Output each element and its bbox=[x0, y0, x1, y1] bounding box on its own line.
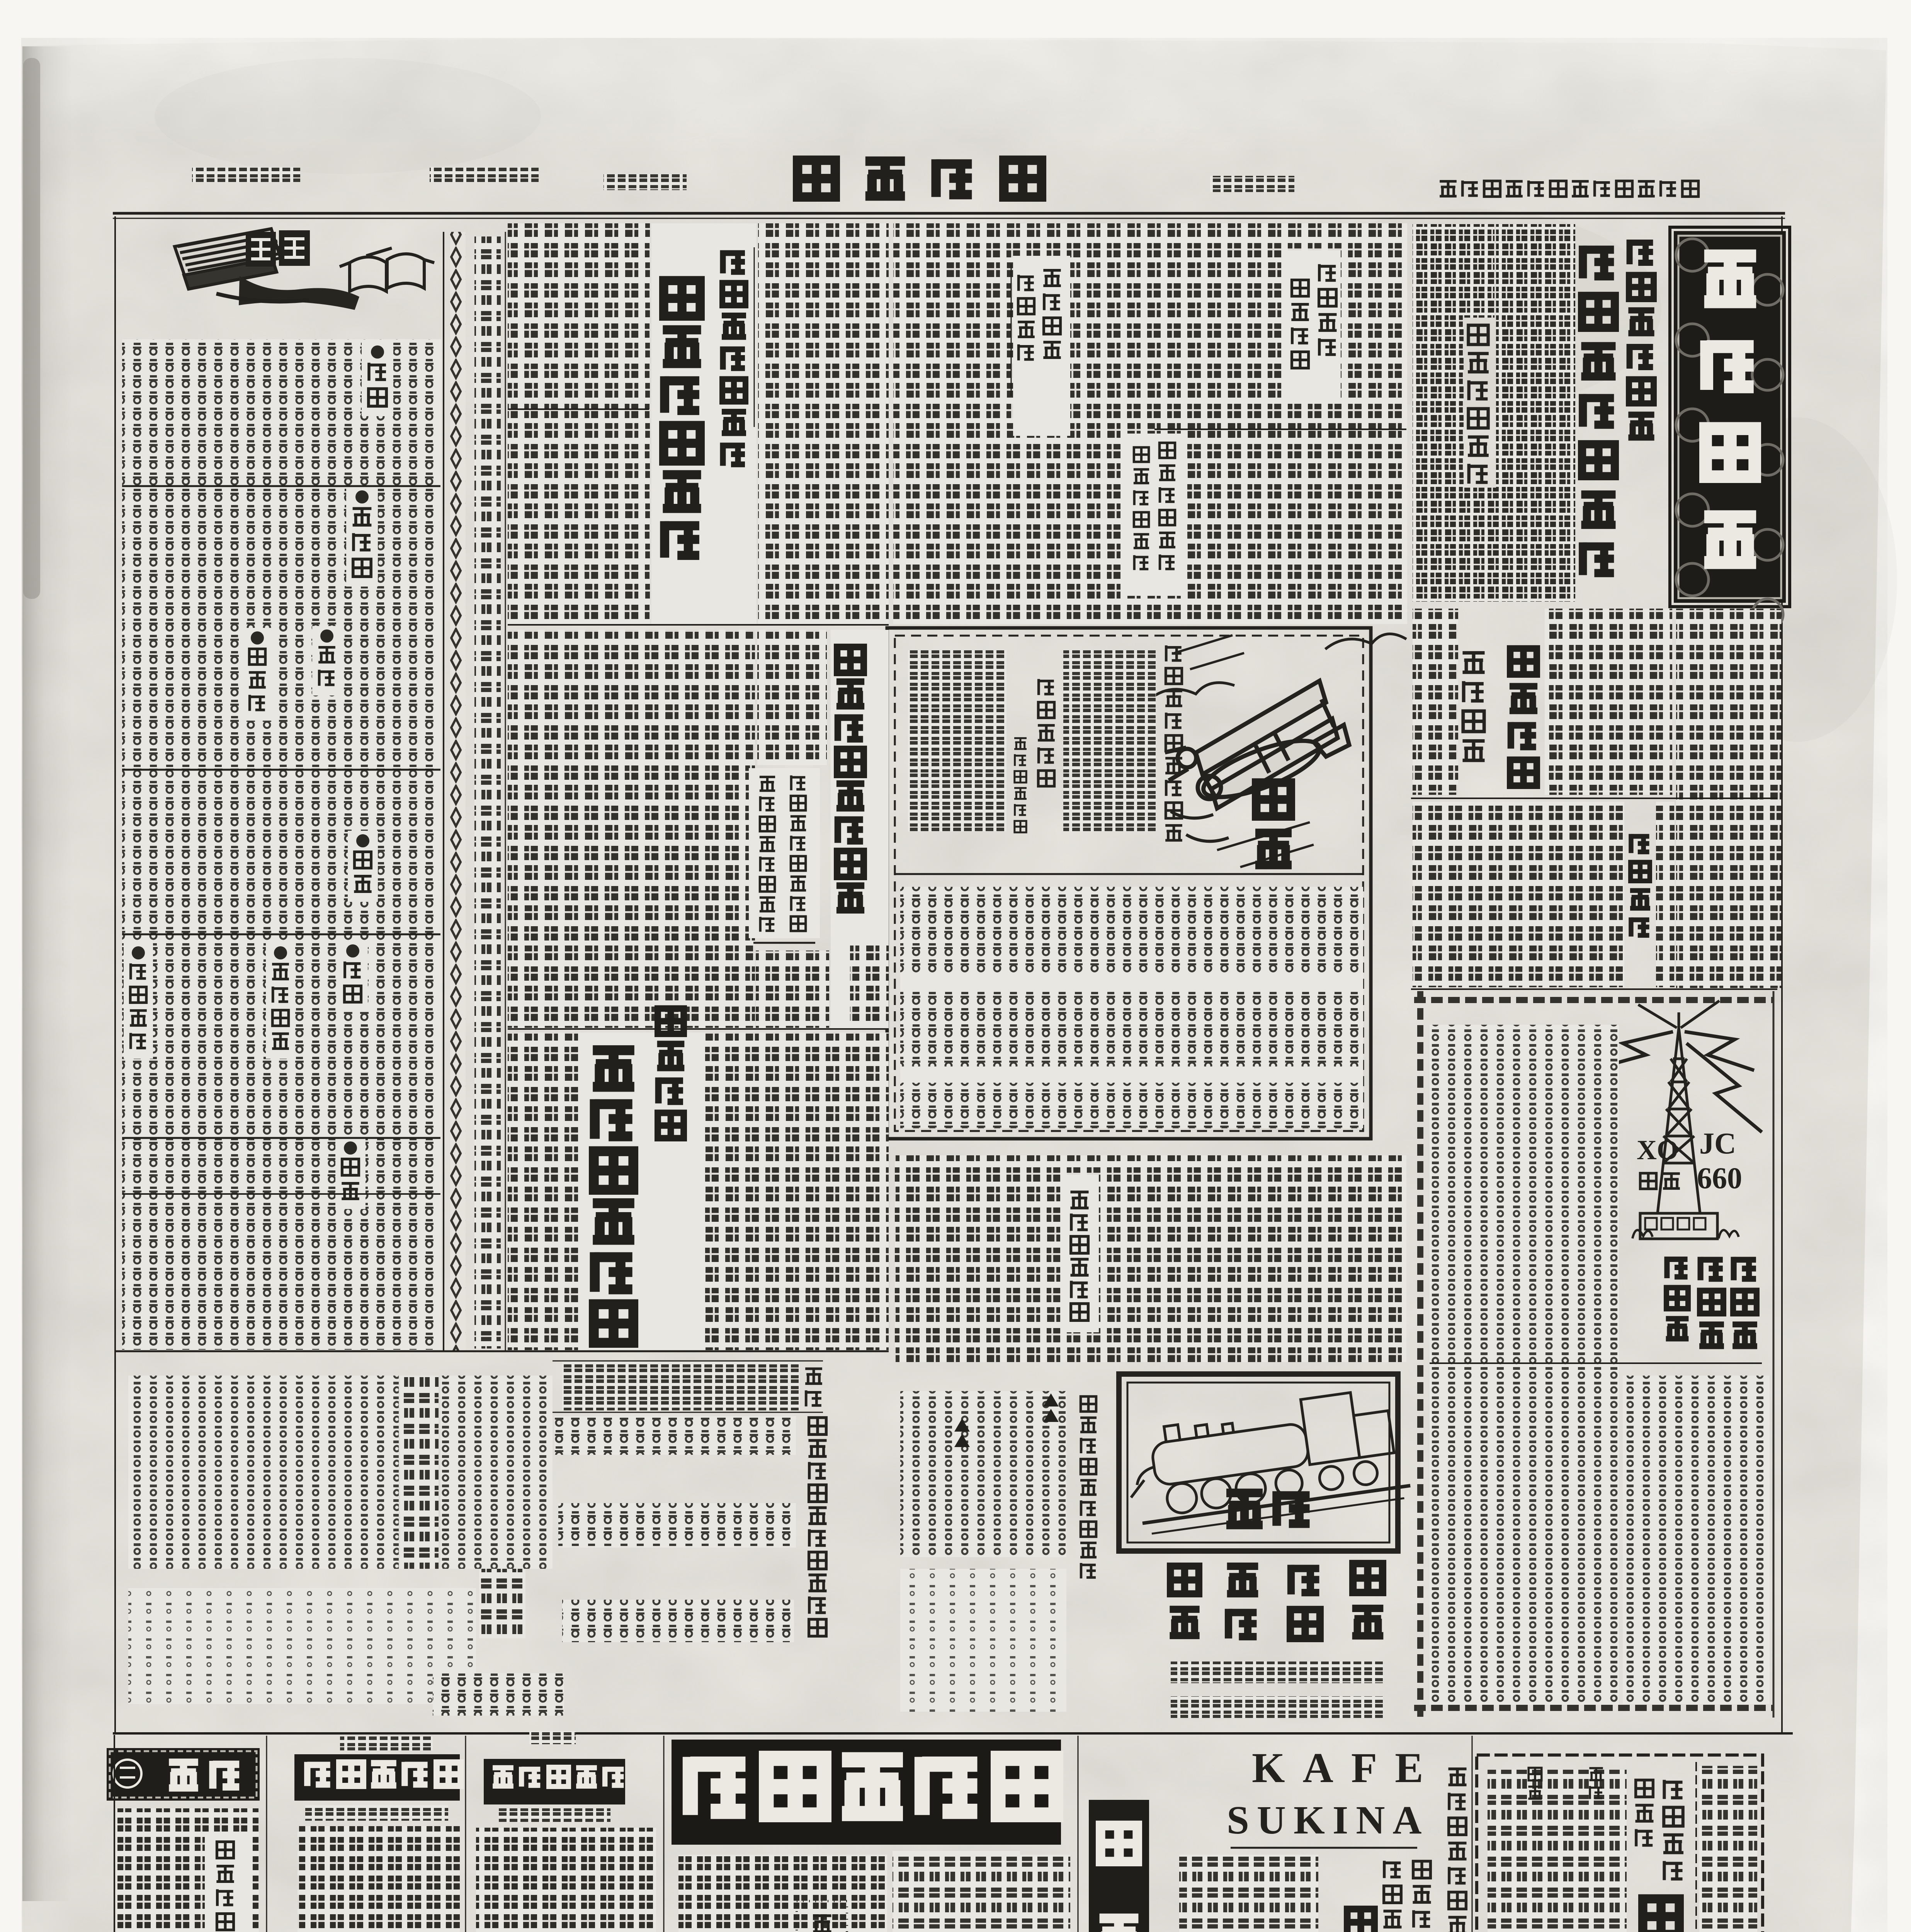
svg-text:660: 660 bbox=[1697, 1161, 1742, 1195]
svg-text:SUKINA: SUKINA bbox=[1227, 1798, 1430, 1842]
svg-text:XO: XO bbox=[1637, 1134, 1678, 1165]
svg-text:KAFE: KAFE bbox=[1252, 1744, 1441, 1791]
svg-text:JC: JC bbox=[1699, 1126, 1736, 1160]
